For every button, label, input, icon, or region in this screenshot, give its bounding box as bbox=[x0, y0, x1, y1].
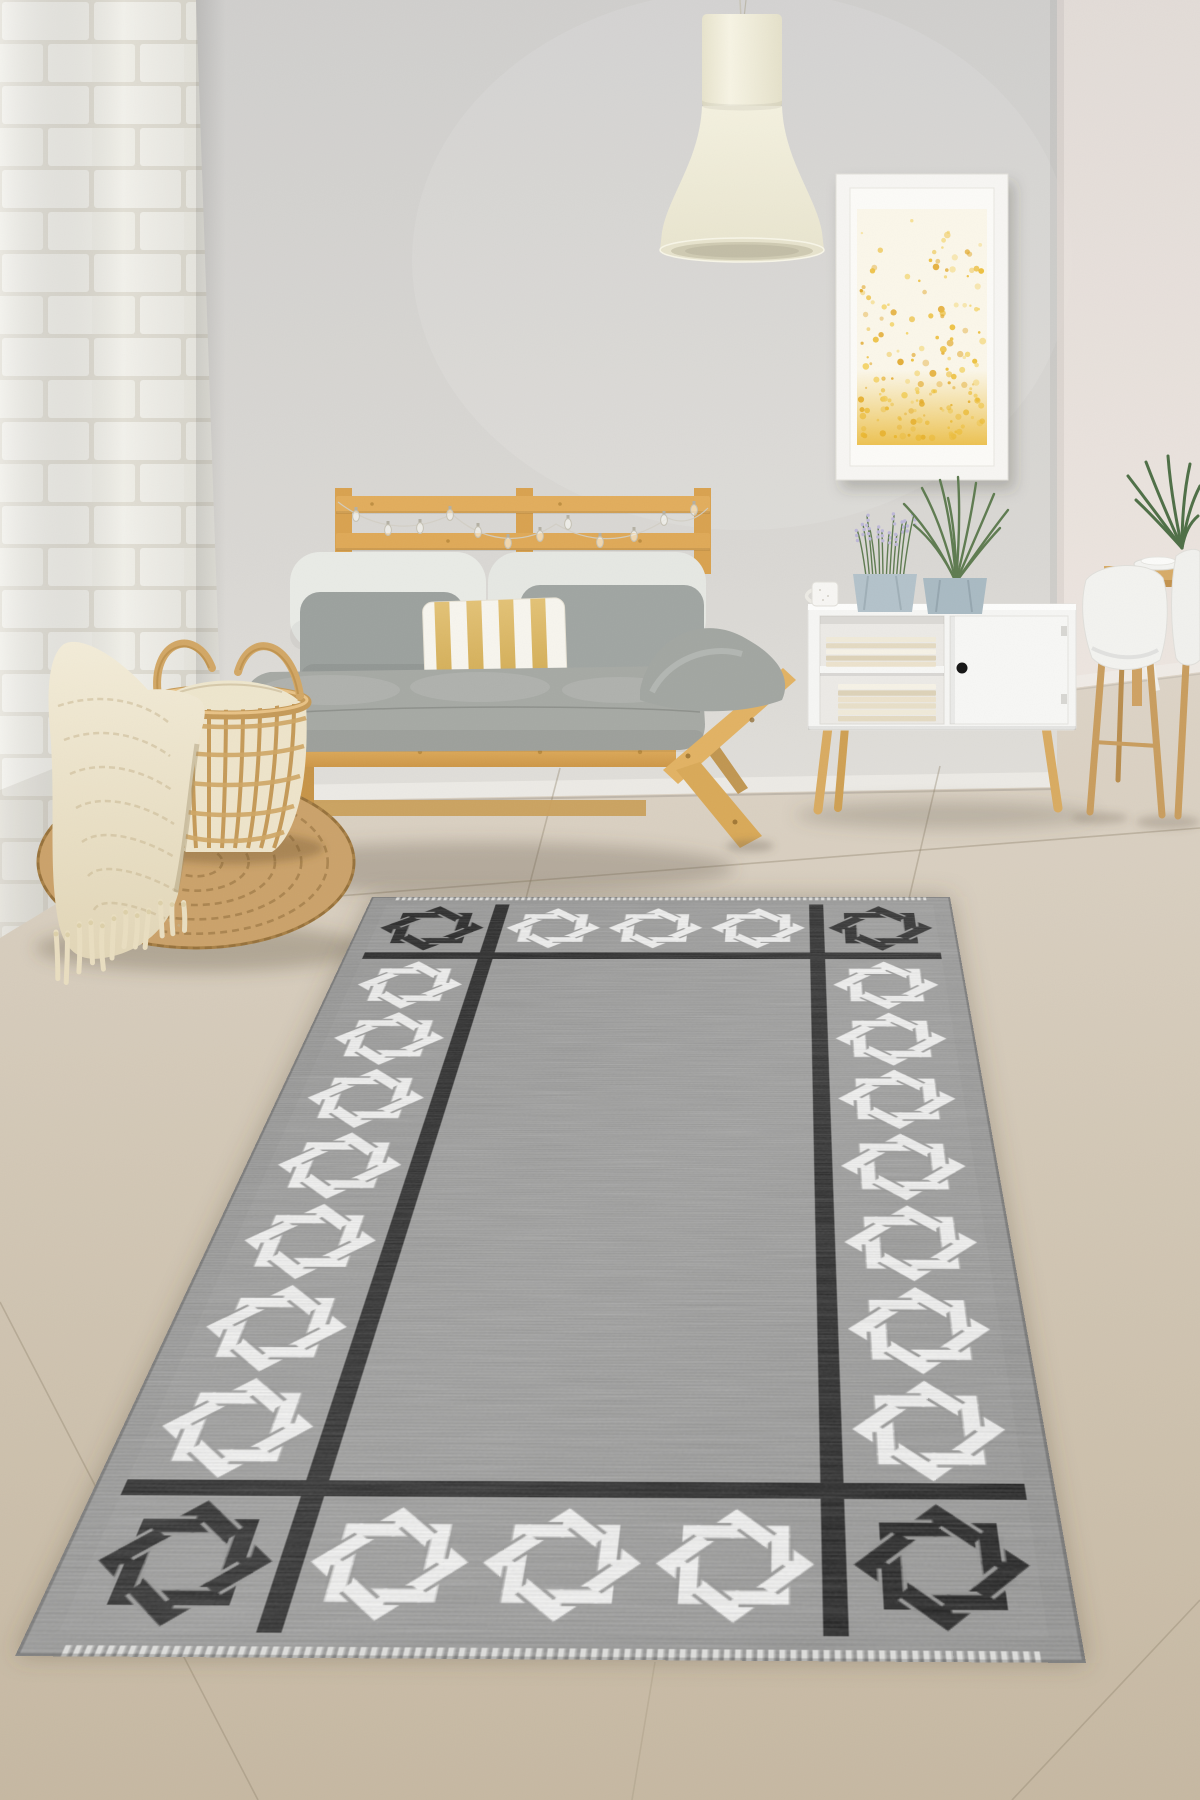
living-room-scene bbox=[0, 0, 1200, 1800]
